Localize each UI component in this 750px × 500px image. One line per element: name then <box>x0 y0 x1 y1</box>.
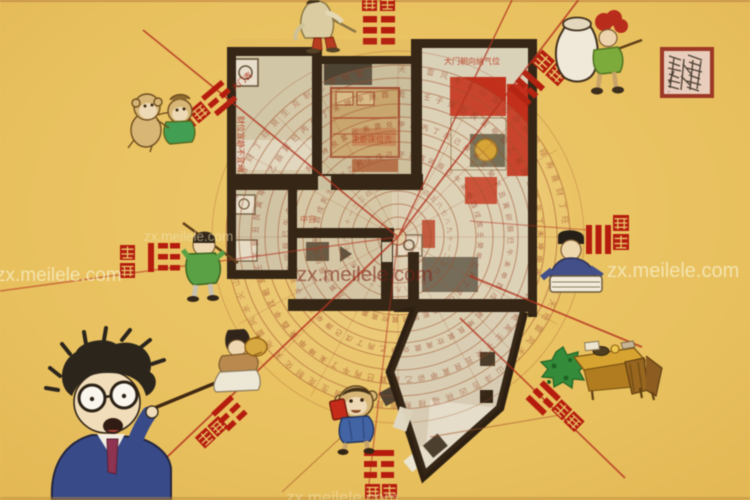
svg-text:zx.meilele.com: zx.meilele.com <box>0 265 122 286</box>
svg-text:zx.meilele.com: zx.meilele.com <box>144 229 233 244</box>
svg-text:zx.meilele.com: zx.meilele.com <box>607 260 739 282</box>
svg-text:zx.meilele.com: zx.meilele.com <box>297 263 433 286</box>
svg-text:zx.meilele.com: zx.meilele.com <box>286 488 398 500</box>
